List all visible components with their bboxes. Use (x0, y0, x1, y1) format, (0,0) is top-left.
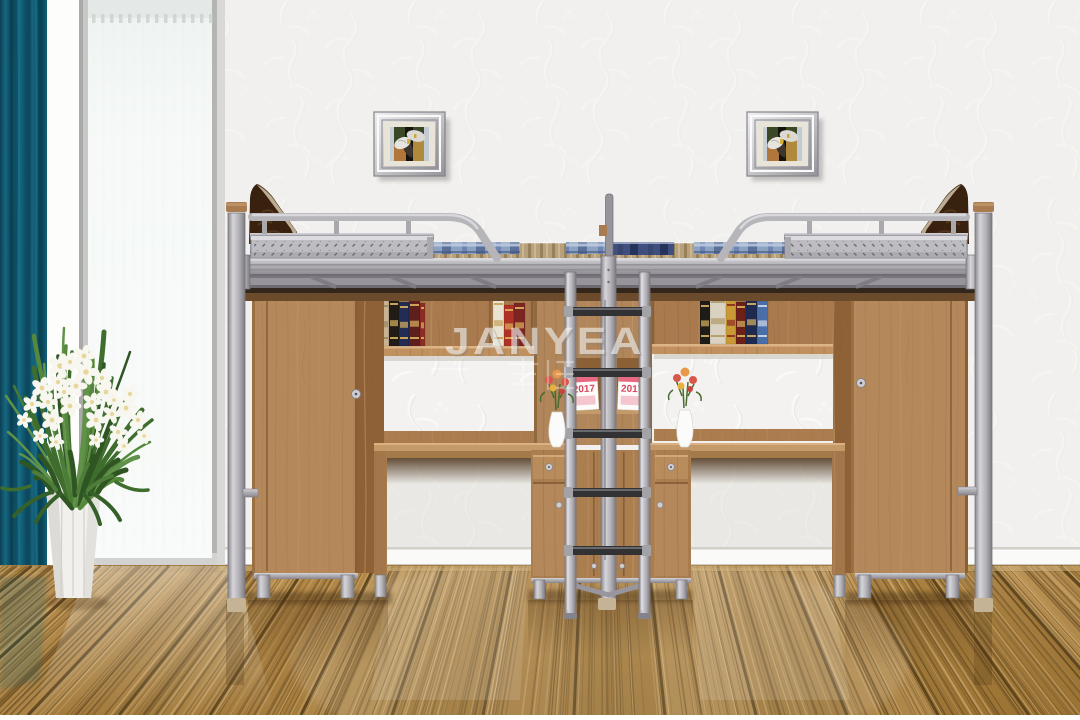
svg-text:JANYEA: JANYEA (445, 321, 645, 363)
